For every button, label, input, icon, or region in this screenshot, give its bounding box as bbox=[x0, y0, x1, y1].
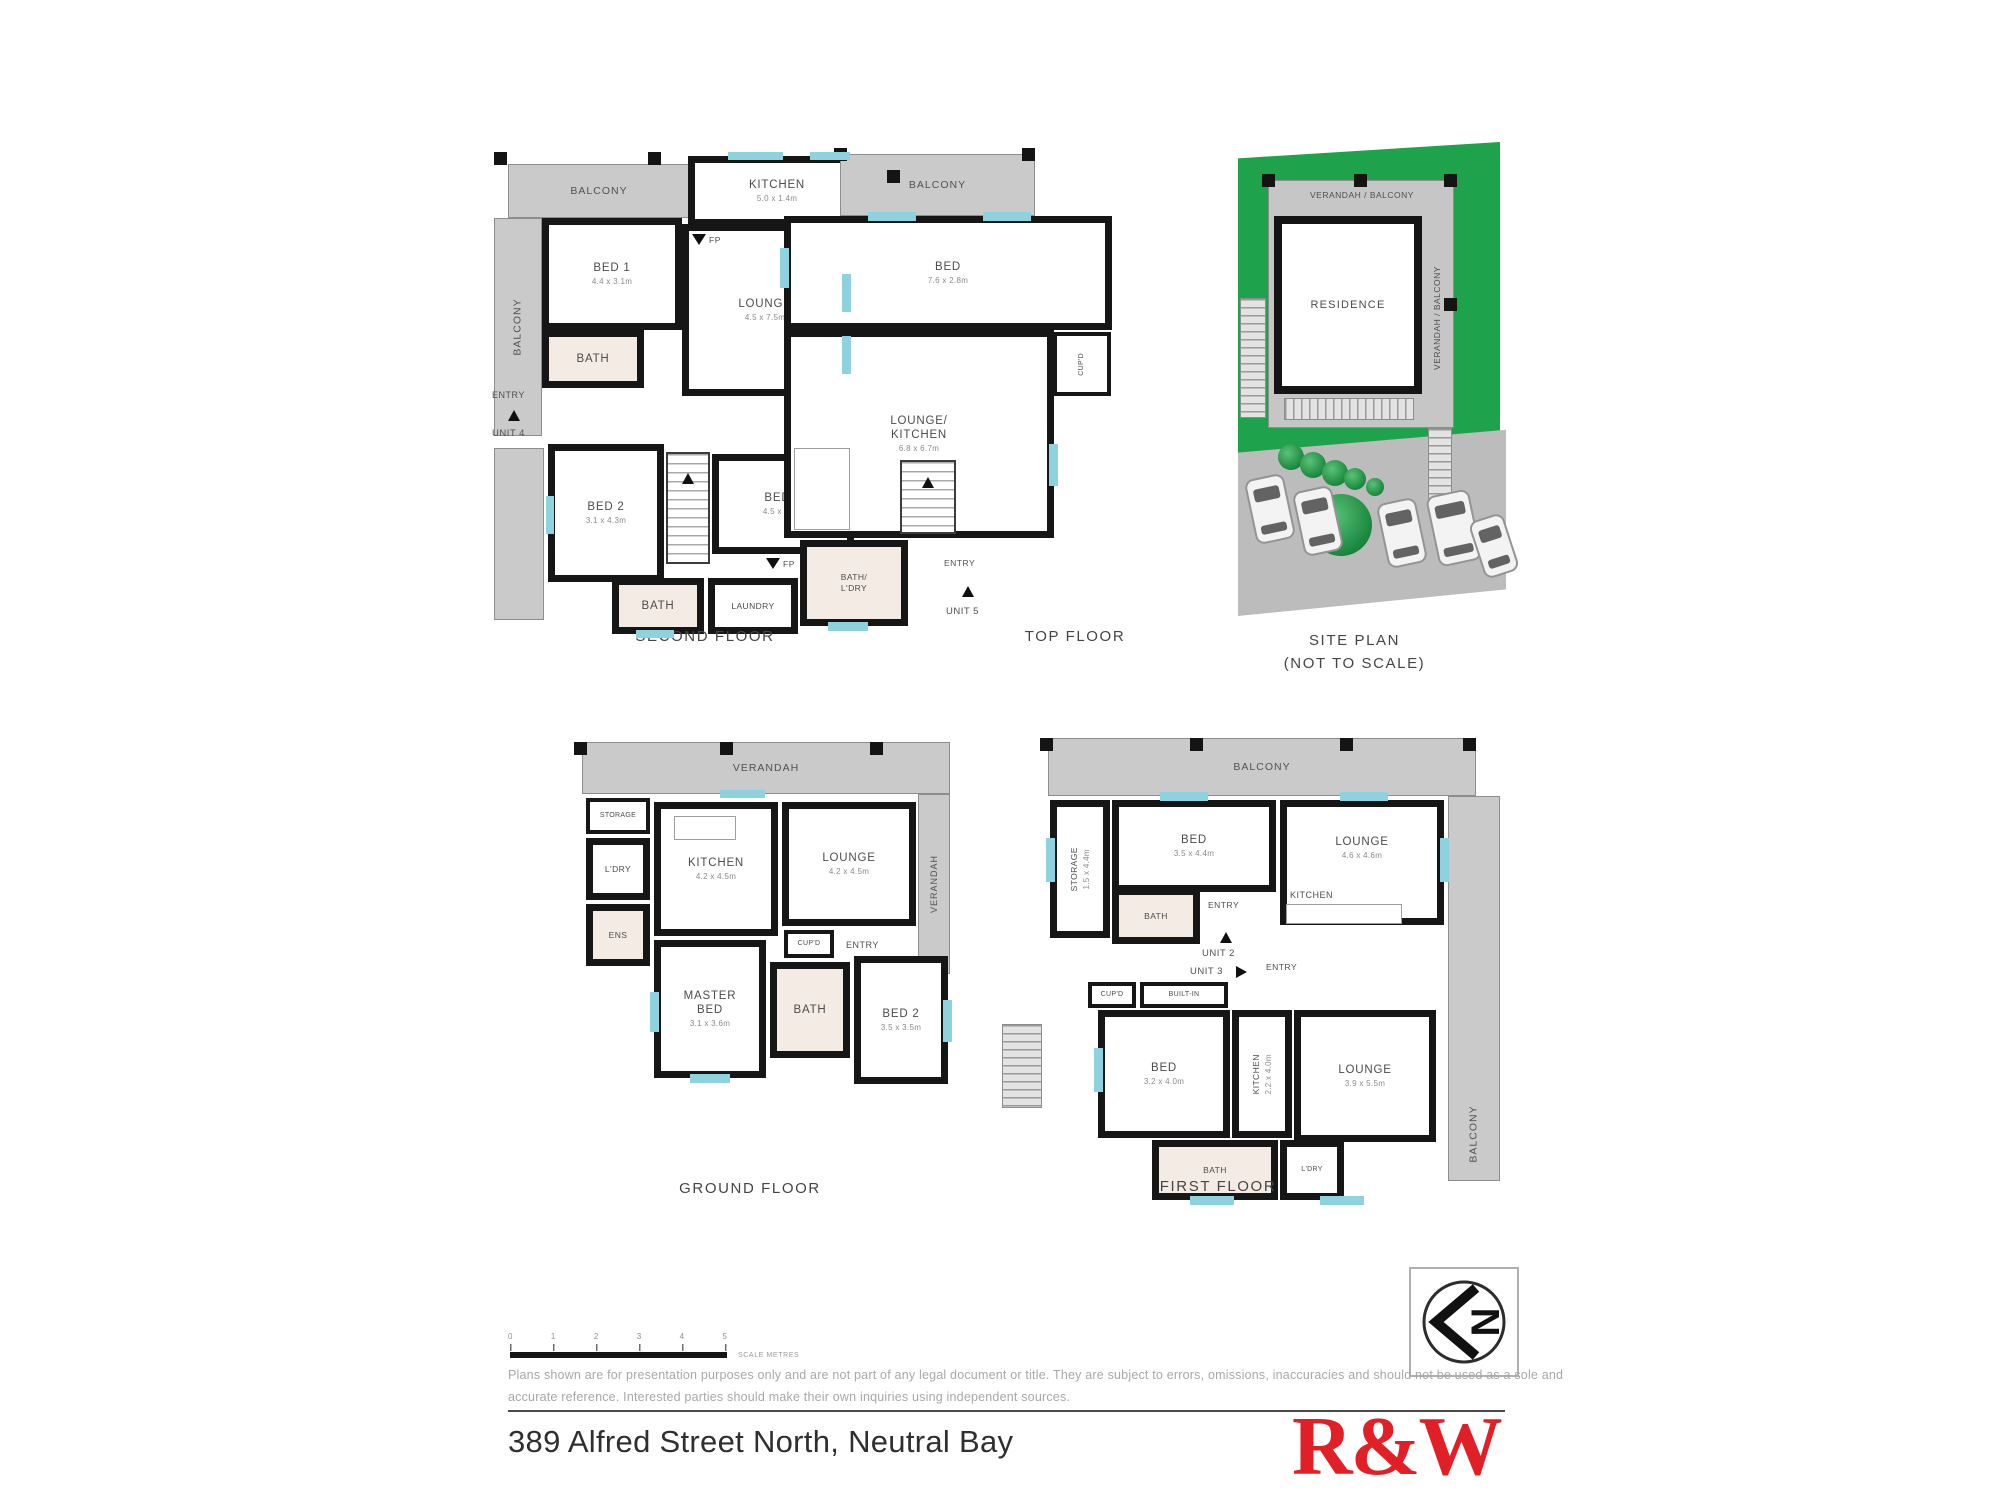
post bbox=[1354, 174, 1367, 187]
external-stairs bbox=[1284, 398, 1414, 420]
window bbox=[728, 152, 783, 160]
room-cupboard: CUP'D bbox=[784, 930, 834, 958]
room-name: BED 2 bbox=[587, 500, 624, 514]
room-bath-laundry: BATH/ L'DRY bbox=[800, 540, 908, 626]
entry-label: ENTRY bbox=[846, 940, 879, 950]
post bbox=[720, 742, 733, 755]
compass-icon: N bbox=[1408, 1266, 1520, 1378]
post bbox=[1190, 738, 1203, 751]
room-dims: 4.2 x 4.5m bbox=[829, 867, 869, 877]
room-master-bed: MASTER BED 3.1 x 3.6m bbox=[654, 940, 766, 1078]
room-dims: 4.2 x 4.5m bbox=[696, 872, 736, 882]
entry-arrow-icon bbox=[508, 410, 520, 421]
window bbox=[1440, 838, 1449, 882]
room-name: LOUNGE bbox=[1338, 1063, 1391, 1077]
balcony-label: BALCONY bbox=[1233, 761, 1290, 773]
compass-north-letter: N bbox=[1464, 1308, 1508, 1337]
room-bed-2: BED 2 3.5 x 3.5m bbox=[854, 956, 948, 1084]
scale-tick: 0 bbox=[508, 1332, 512, 1341]
room-name: CUP'D bbox=[798, 940, 821, 949]
scale-tick: 2 bbox=[594, 1332, 598, 1341]
plan-first-floor: BALCONY BALCONY STORAGE 1.5 x 4.4m BED 3… bbox=[1040, 738, 1505, 1213]
room-dims: 3.5 x 4.4m bbox=[1174, 849, 1214, 859]
room-name: BATH/ bbox=[841, 572, 867, 583]
kitchen-counter bbox=[794, 448, 850, 530]
plan-caption-site: SITE PLAN (NOT TO SCALE) bbox=[1252, 630, 1457, 675]
room-dims: 4.4 x 3.1m bbox=[592, 277, 632, 287]
property-address: 389 Alfred Street North, Neutral Bay bbox=[508, 1424, 1013, 1460]
room-bath-upper: BATH bbox=[542, 330, 644, 388]
room-ensuite: ENS bbox=[586, 904, 650, 966]
verandah-right-band: VERANDAH / BALCONY bbox=[1424, 218, 1450, 418]
stairs-up-arrow-icon bbox=[682, 473, 694, 484]
room-name: BATH bbox=[1144, 911, 1168, 922]
room-name: LOUNGE bbox=[822, 851, 875, 865]
tree bbox=[1344, 468, 1366, 490]
room-name: BATH bbox=[1203, 1165, 1227, 1176]
post bbox=[1463, 738, 1476, 751]
car-rear-window bbox=[1443, 542, 1474, 557]
room-kitchen-lower: KITCHEN 2.2 x 4.0m bbox=[1232, 1010, 1292, 1138]
post bbox=[648, 152, 661, 165]
room-name: BED 2 bbox=[882, 1007, 919, 1021]
room-name: L'DRY bbox=[1301, 1166, 1322, 1175]
window bbox=[983, 212, 1031, 221]
unit-label: UNIT 5 bbox=[946, 606, 979, 617]
plan-caption-ground-floor: GROUND FLOOR bbox=[640, 1180, 860, 1197]
car-windshield bbox=[1385, 509, 1413, 527]
room-name: BUILT-IN bbox=[1169, 991, 1200, 1000]
room-name: L'DRY bbox=[605, 864, 631, 875]
verandah-right-label: VERANDAH / BALCONY bbox=[1432, 266, 1442, 370]
unit-label: UNIT 3 bbox=[1190, 966, 1223, 977]
entry-label: ENTRY bbox=[1208, 900, 1239, 910]
window bbox=[1320, 1196, 1364, 1205]
window bbox=[842, 274, 851, 312]
room-dims: 1.5 x 4.4m bbox=[1081, 849, 1091, 889]
window bbox=[1049, 444, 1058, 486]
car-rear-window bbox=[1392, 545, 1419, 559]
post bbox=[494, 152, 507, 165]
room-bed-1: BED 1 4.4 x 3.1m bbox=[542, 218, 682, 330]
plan-top-floor: BALCONY BED 7.6 x 2.8m CUP'D LOUNGE/ KIT… bbox=[748, 148, 1148, 638]
room-laundry: L'DRY bbox=[586, 838, 650, 900]
window bbox=[720, 790, 765, 798]
room-bed-upper: BED 3.5 x 4.4m bbox=[1112, 800, 1276, 892]
car-rear-window bbox=[1260, 521, 1287, 535]
car-windshield bbox=[1253, 485, 1281, 503]
room-name: LOUNGE bbox=[1335, 835, 1388, 849]
post bbox=[1444, 298, 1457, 311]
window bbox=[943, 1000, 952, 1042]
post bbox=[887, 170, 900, 183]
floorplan-page: BALCONY KITCHEN 5.0 x 1.4m BALCONY BALCO… bbox=[0, 0, 2000, 1500]
room-name: BATH bbox=[641, 599, 674, 613]
room-name: CUP'D bbox=[1101, 991, 1124, 1000]
room-lounge-lower: LOUNGE 3.9 x 5.5m bbox=[1294, 1010, 1436, 1142]
room-name: BED bbox=[1151, 1061, 1177, 1075]
verandah-right: VERANDAH bbox=[918, 794, 950, 974]
window bbox=[1340, 792, 1388, 801]
room-name: BED bbox=[935, 260, 961, 274]
room-dims: 6.8 x 6.7m bbox=[899, 444, 939, 454]
window bbox=[636, 630, 674, 638]
room-cupboard: CUP'D bbox=[1053, 332, 1111, 396]
room-bath-lower: BATH bbox=[612, 578, 704, 634]
external-stairs bbox=[1002, 1024, 1042, 1108]
balcony-label: BALCONY bbox=[909, 179, 966, 191]
scale-tick: 4 bbox=[680, 1332, 684, 1341]
scale-numbers: 0 1 2 3 4 5 bbox=[508, 1332, 727, 1341]
room-dims: 2.2 x 4.0m bbox=[1263, 1054, 1273, 1094]
post bbox=[1340, 738, 1353, 751]
window bbox=[828, 622, 868, 631]
tree bbox=[1366, 478, 1384, 496]
verandah-label: VERANDAH bbox=[733, 762, 799, 774]
kitchen-island bbox=[674, 816, 736, 840]
entry-label: ENTRY bbox=[944, 558, 975, 568]
stairs-up-arrow-icon bbox=[922, 477, 934, 488]
window bbox=[1046, 838, 1055, 882]
room-name: STORAGE bbox=[1069, 847, 1080, 891]
room-storage: STORAGE 1.5 x 4.4m bbox=[1050, 800, 1110, 938]
unit-label: UNIT 4 bbox=[492, 428, 525, 439]
staircase bbox=[900, 460, 956, 534]
room-name: STORAGE bbox=[600, 812, 636, 821]
plan-caption-first-floor: FIRST FLOOR bbox=[1118, 1178, 1318, 1195]
room-name: LOUNGE/ bbox=[890, 414, 947, 428]
rw-logo: R&W bbox=[1292, 1398, 1501, 1495]
window bbox=[1160, 792, 1208, 801]
window bbox=[690, 1074, 730, 1083]
kitchen-label: KITCHEN bbox=[1290, 890, 1333, 900]
fireplace-icon bbox=[766, 558, 780, 569]
balcony-top: BALCONY bbox=[840, 154, 1035, 216]
room-name: BED bbox=[1181, 833, 1207, 847]
room-name2: BED bbox=[697, 1003, 723, 1017]
post bbox=[870, 742, 883, 755]
room-dims: 3.1 x 3.6m bbox=[690, 1019, 730, 1029]
room-bath: BATH bbox=[770, 962, 850, 1058]
scale-tick: 5 bbox=[723, 1332, 727, 1341]
room-name: BATH bbox=[576, 352, 609, 366]
window bbox=[868, 212, 916, 221]
entry-arrow-right-icon bbox=[1236, 966, 1247, 978]
post bbox=[1444, 174, 1457, 187]
residence-outline: RESIDENCE bbox=[1274, 216, 1422, 394]
room-name: KITCHEN bbox=[688, 856, 744, 870]
site-caption-line1: SITE PLAN bbox=[1252, 630, 1457, 653]
site-caption-line2: (NOT TO SCALE) bbox=[1252, 653, 1457, 676]
entry-label: ENTRY bbox=[492, 390, 525, 400]
room-storage: STORAGE bbox=[586, 798, 650, 834]
room-label-rotated: KITCHEN 2.2 x 4.0m bbox=[1251, 1054, 1274, 1094]
room-name2: L'DRY bbox=[841, 583, 867, 594]
entry-label: ENTRY bbox=[1266, 962, 1297, 972]
room-dims: 3.9 x 5.5m bbox=[1345, 1079, 1385, 1089]
room-dims: 7.6 x 2.8m bbox=[928, 276, 968, 286]
room-bed: BED 7.6 x 2.8m bbox=[784, 216, 1112, 330]
entry-arrow-icon bbox=[962, 586, 974, 597]
room-name: CUP'D bbox=[1078, 353, 1087, 376]
room-bed-lower: BED 3.2 x 4.0m bbox=[1098, 1010, 1230, 1138]
car-rear-window bbox=[1308, 533, 1335, 547]
window bbox=[650, 992, 659, 1032]
entry-arrow-icon bbox=[1220, 932, 1232, 943]
compass-svg: N bbox=[1408, 1266, 1520, 1378]
room-name: ENS bbox=[609, 930, 628, 941]
plan-ground-floor: VERANDAH VERANDAH UNIT 1 STORAGE L'DRY E… bbox=[570, 742, 965, 1132]
staircase bbox=[666, 452, 710, 564]
verandah-top: VERANDAH bbox=[582, 742, 950, 794]
room-dims: 3.5 x 3.5m bbox=[881, 1023, 921, 1033]
room-dims: 3.2 x 4.0m bbox=[1144, 1077, 1184, 1087]
kitchen-counter bbox=[1286, 904, 1402, 924]
car-windshield bbox=[1434, 500, 1466, 519]
unit-label: UNIT 2 bbox=[1202, 948, 1235, 959]
balcony-label: BALCONY bbox=[512, 298, 524, 355]
room-dims: 3.1 x 4.3m bbox=[586, 516, 626, 526]
room-name2: KITCHEN bbox=[891, 428, 947, 442]
verandah-top-label: VERANDAH / BALCONY bbox=[1280, 190, 1444, 200]
room-dims: 4.6 x 4.6m bbox=[1342, 851, 1382, 861]
room-name: BED 1 bbox=[593, 261, 630, 275]
post bbox=[1262, 174, 1275, 187]
disclaimer-line1: Plans shown are for presentation purpose… bbox=[508, 1368, 1563, 1382]
external-stairs bbox=[1240, 298, 1266, 418]
car-windshield bbox=[1301, 497, 1329, 515]
post bbox=[1022, 148, 1035, 161]
balcony-label: BALCONY bbox=[570, 185, 627, 197]
scale-bar bbox=[510, 1352, 727, 1358]
window bbox=[780, 248, 789, 288]
fireplace-marker: FP bbox=[692, 234, 721, 245]
walkway-strip bbox=[494, 448, 544, 620]
balcony-right: BALCONY bbox=[1448, 796, 1500, 1181]
balcony-left: BALCONY bbox=[494, 218, 542, 436]
balcony-top: BALCONY bbox=[508, 164, 690, 218]
room-bath-upper: BATH bbox=[1112, 888, 1200, 944]
scale-tickmarks bbox=[510, 1344, 727, 1351]
car-windshield bbox=[1478, 525, 1503, 544]
scale-tick: 1 bbox=[551, 1332, 555, 1341]
balcony-label: BALCONY bbox=[1468, 1105, 1480, 1162]
room-name: MASTER bbox=[684, 989, 737, 1003]
window bbox=[546, 496, 554, 534]
scale-tick: 3 bbox=[637, 1332, 641, 1341]
room-cupboard: CUP'D bbox=[1088, 982, 1136, 1008]
post bbox=[574, 742, 587, 755]
room-name: KITCHEN bbox=[1251, 1054, 1262, 1094]
room-lounge: LOUNGE 4.2 x 4.5m bbox=[782, 802, 916, 926]
window bbox=[842, 336, 851, 374]
balcony-top: BALCONY bbox=[1048, 738, 1476, 796]
plan-site: VERANDAH / BALCONY VERANDAH / BALCONY RE… bbox=[1238, 128, 1506, 628]
room-label-rotated: STORAGE 1.5 x 4.4m bbox=[1069, 847, 1092, 891]
fireplace-label: FP bbox=[783, 559, 795, 569]
disclaimer-line2: accurate reference. Interested parties s… bbox=[508, 1390, 1070, 1404]
fireplace-marker: FP bbox=[766, 558, 795, 569]
room-name: BATH bbox=[793, 1003, 826, 1017]
window bbox=[810, 152, 850, 160]
post bbox=[1040, 738, 1053, 751]
room-builtin: BUILT-IN bbox=[1140, 982, 1228, 1008]
room-bed-2: BED 2 3.1 x 4.3m bbox=[548, 444, 664, 582]
fireplace-label: FP bbox=[709, 235, 721, 245]
plan-caption-top-floor: TOP FLOOR bbox=[975, 628, 1175, 645]
car-rear-window bbox=[1487, 554, 1511, 569]
window bbox=[1094, 1048, 1103, 1092]
fireplace-icon bbox=[692, 234, 706, 245]
window bbox=[1190, 1196, 1234, 1205]
verandah-label: VERANDAH bbox=[929, 855, 939, 913]
residence-label: RESIDENCE bbox=[1311, 299, 1386, 311]
scale-unit-label: SCALE METRES bbox=[738, 1352, 799, 1359]
